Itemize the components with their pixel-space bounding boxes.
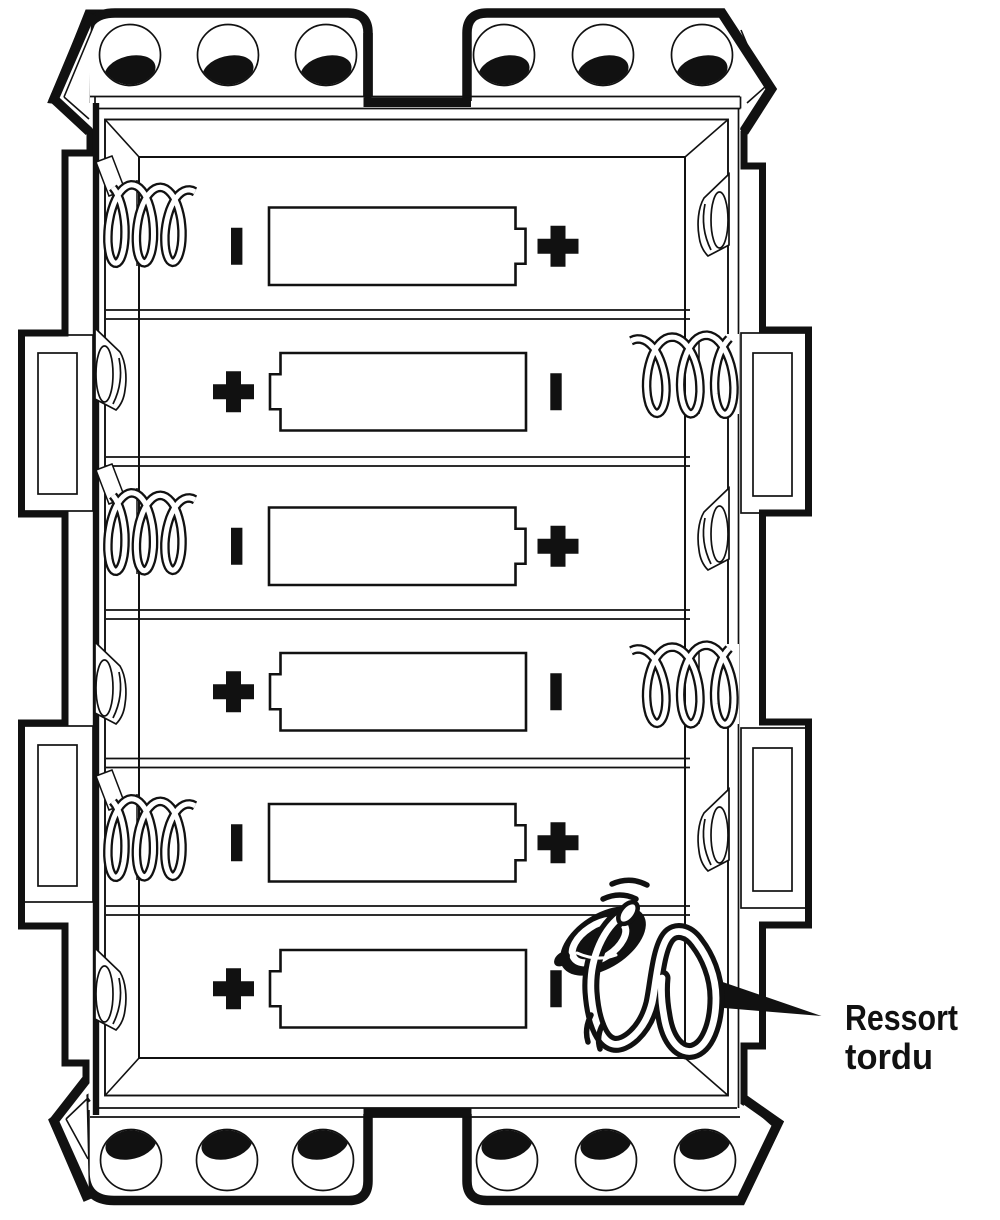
svg-text:tordu: tordu xyxy=(845,1036,933,1077)
svg-text:Ressort: Ressort xyxy=(845,997,958,1038)
